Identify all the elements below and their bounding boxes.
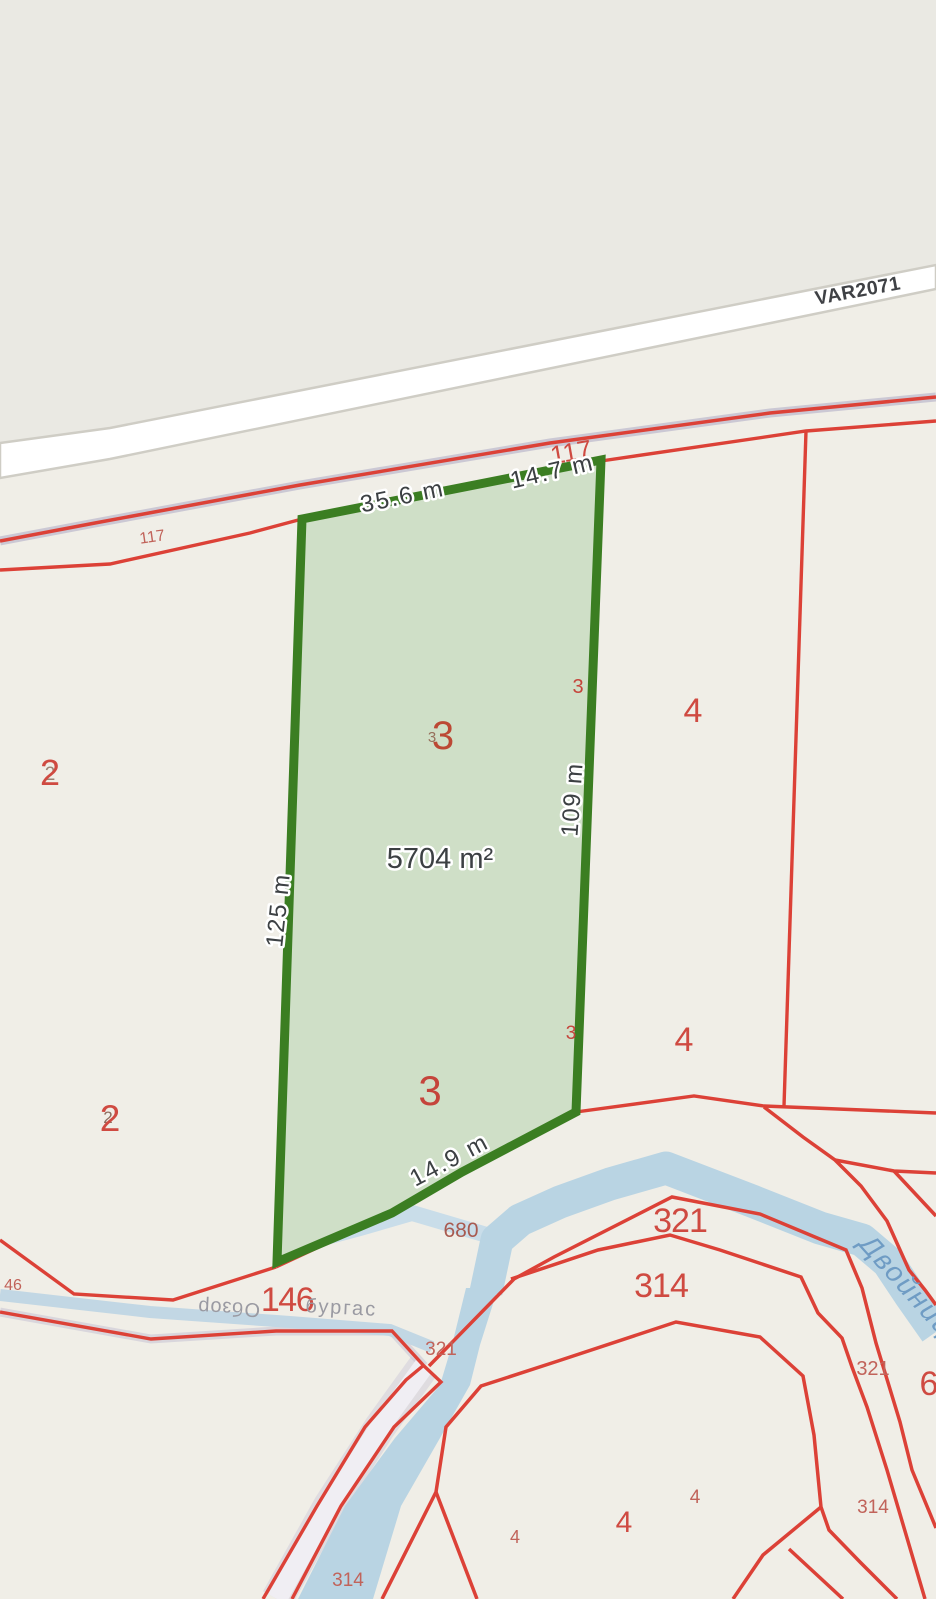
svg-text:117: 117: [138, 527, 166, 547]
svg-text:109 m: 109 m: [556, 762, 588, 838]
svg-text:321: 321: [425, 1339, 457, 1360]
svg-text:314: 314: [634, 1267, 688, 1305]
svg-text:3: 3: [566, 1023, 577, 1044]
svg-text:46: 46: [4, 1277, 22, 1294]
svg-text:бургас: бургас: [305, 1295, 378, 1321]
svg-text:314: 314: [857, 1497, 889, 1518]
svg-text:3: 3: [428, 729, 436, 746]
svg-text:321: 321: [653, 1202, 707, 1240]
svg-text:3: 3: [572, 676, 583, 698]
svg-text:4: 4: [690, 1487, 701, 1508]
svg-text:4: 4: [510, 1527, 520, 1547]
svg-text:321: 321: [856, 1358, 889, 1380]
svg-text:3: 3: [418, 1067, 441, 1114]
svg-text:5704 m²: 5704 m²: [387, 843, 494, 875]
svg-text:680: 680: [443, 1219, 478, 1242]
svg-text:4: 4: [616, 1506, 633, 1539]
svg-text:4: 4: [675, 1021, 694, 1059]
svg-text:4: 4: [684, 692, 703, 730]
svg-text:314: 314: [332, 1570, 364, 1591]
svg-text:2: 2: [100, 1098, 121, 1139]
svg-text:2: 2: [40, 752, 60, 793]
svg-text:6: 6: [920, 1365, 936, 1403]
svg-text:Обзор: Обзор: [197, 1295, 261, 1320]
